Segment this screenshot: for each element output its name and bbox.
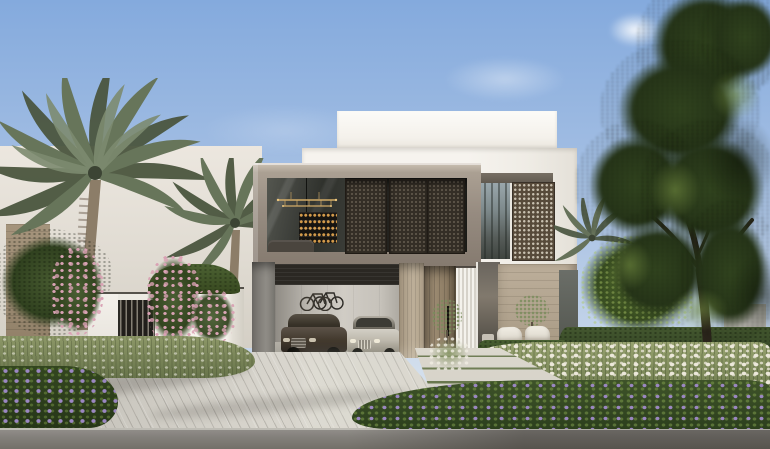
frame-edge-highlight <box>253 163 258 268</box>
canopy-highlight <box>700 60 770 130</box>
car-headlight <box>309 338 316 342</box>
wall-mounted-bicycles <box>299 281 347 311</box>
flowering-shrub-pink <box>50 246 104 336</box>
car-windshield <box>356 318 392 327</box>
car-headlight <box>374 339 380 343</box>
mashrabiya-screen-1 <box>345 179 387 254</box>
street-road <box>0 428 770 449</box>
bar-shelf-bottles <box>299 212 337 243</box>
bedroom-window <box>477 183 512 259</box>
purple-flower-bed-left <box>0 366 118 428</box>
car-headlight <box>283 338 290 342</box>
mashrabiya-screen-3 <box>427 179 465 254</box>
structural-column-left <box>252 262 275 358</box>
canopy-highlight <box>600 230 660 300</box>
bedroom-mashrabiya-screen <box>512 182 555 261</box>
canopy-highlight <box>660 280 740 340</box>
roof-parapet <box>337 111 557 149</box>
sofa-silhouette <box>268 240 314 252</box>
cloud <box>420 48 590 110</box>
grass-tuft <box>428 336 470 370</box>
potted-olive-canopy <box>432 299 462 334</box>
mashrabiya-screen-2 <box>389 179 428 254</box>
canopy-highlight <box>640 150 710 230</box>
structural-column-stone <box>399 263 424 358</box>
villa-exterior-render <box>0 0 770 449</box>
car-headlight <box>350 339 356 343</box>
chandelier <box>275 192 339 212</box>
